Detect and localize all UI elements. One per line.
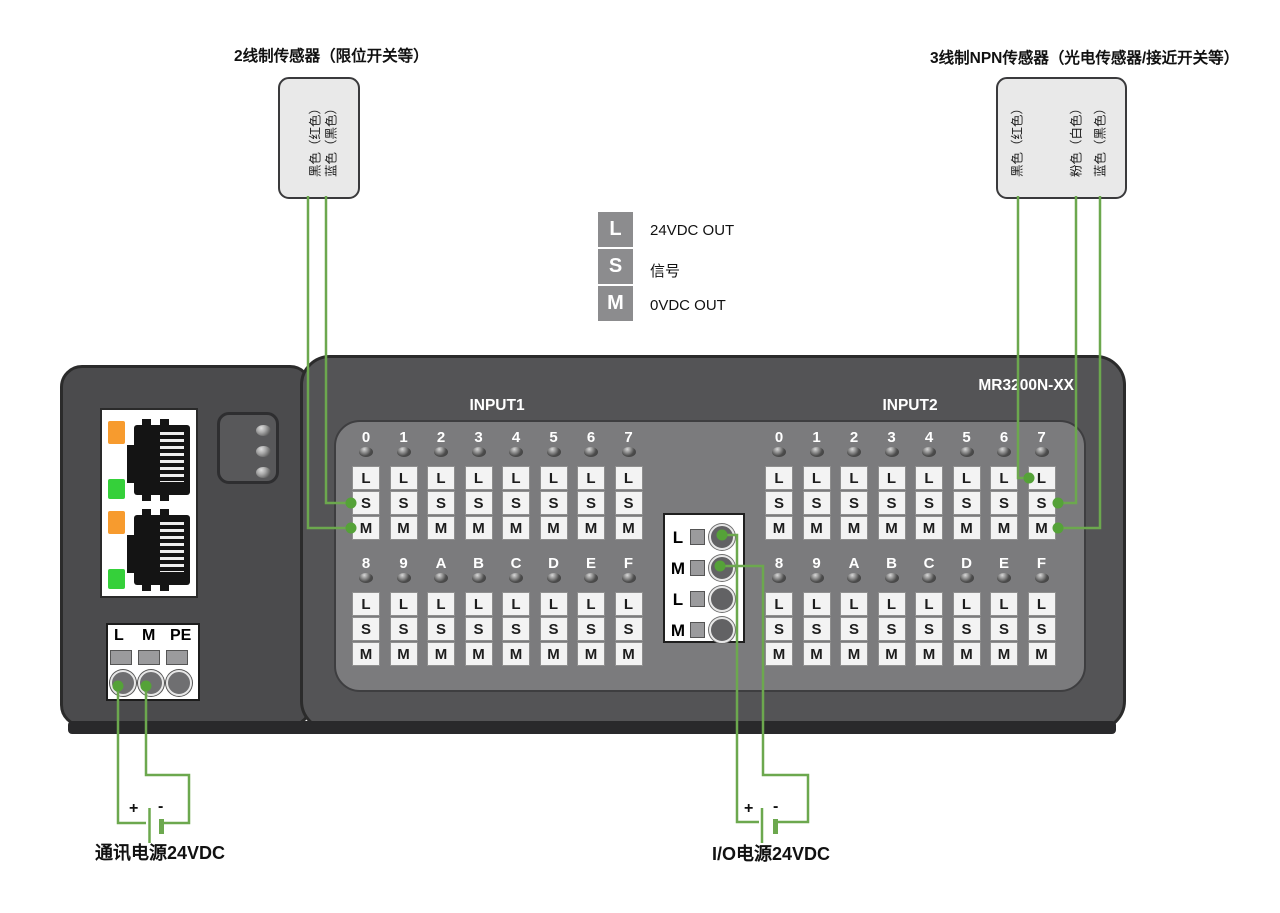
terminal-m: M: [803, 642, 831, 666]
channel-number: 0: [352, 429, 380, 446]
channel-led-icon: [434, 447, 448, 457]
channel-led-icon: [434, 573, 448, 583]
terminal-s: S: [465, 617, 493, 641]
rj45-latch-icon: [127, 535, 136, 573]
terminal-l: L: [427, 466, 455, 490]
terminal-s: S: [427, 491, 455, 515]
channel-column: BLSM: [465, 555, 493, 667]
comm-terminal-hole-icon: [110, 670, 136, 696]
channel-number: E: [990, 555, 1018, 572]
channel-led-icon: [397, 447, 411, 457]
wire-color-label: 蓝色（黑色）: [321, 92, 340, 188]
terminal-m: M: [502, 642, 530, 666]
terminal-s: S: [1028, 617, 1056, 641]
wire-color-label: 粉色（白色）: [1066, 92, 1085, 188]
comm-terminal-hole-icon: [166, 670, 192, 696]
terminal-l: L: [427, 592, 455, 616]
terminal-l: L: [840, 592, 868, 616]
terminal-m: M: [765, 642, 793, 666]
channel-number: 0: [765, 429, 793, 446]
channel-number: A: [427, 555, 455, 572]
terminal-s: S: [540, 617, 568, 641]
terminal-l: L: [1028, 592, 1056, 616]
channel-number: F: [615, 555, 643, 572]
terminal-m: M: [577, 642, 605, 666]
channel-column: 9LSM: [390, 555, 418, 667]
link-led-green-icon: [108, 569, 125, 589]
terminal-l: L: [878, 466, 906, 490]
io-terminal-hole-icon: [709, 555, 735, 581]
three-wire-sensor-title: 3线制NPN传感器（光电传感器/接近开关等）: [930, 46, 1239, 68]
channel-number: C: [502, 555, 530, 572]
comm-terminal-slot-icon: [138, 650, 160, 665]
terminal-s: S: [352, 491, 380, 515]
three-wire-sensor-box: 黑色（红色） 粉色（白色） 蓝色（黑色）: [996, 77, 1127, 199]
terminal-l: L: [953, 592, 981, 616]
terminal-l: L: [615, 592, 643, 616]
terminal-s: S: [1028, 491, 1056, 515]
channel-column: CLSM: [502, 555, 530, 667]
comm-psu-plus-sign: +: [129, 800, 138, 818]
channel-led-icon: [847, 447, 861, 457]
channel-column: 1LSM: [390, 429, 418, 541]
terminal-m: M: [990, 516, 1018, 540]
terminal-l: L: [540, 592, 568, 616]
channel-led-icon: [885, 573, 899, 583]
channel-column: 2LSM: [427, 429, 455, 541]
io-terminal-slot-icon: [690, 622, 705, 638]
terminal-l: L: [577, 466, 605, 490]
rj45-nub-icon: [160, 584, 169, 591]
terminal-m: M: [765, 516, 793, 540]
terminal-m: M: [840, 516, 868, 540]
ethernet-port-1: [102, 416, 196, 501]
terminal-s: S: [878, 491, 906, 515]
legend-desc-M: 0VDC OUT: [650, 297, 726, 314]
channel-number: C: [915, 555, 943, 572]
terminal-l: L: [615, 466, 643, 490]
legend-desc-S: 信号: [650, 260, 680, 281]
channel-column: 9LSM: [803, 555, 831, 667]
channel-number: 3: [465, 429, 493, 446]
channel-led-icon: [1035, 447, 1049, 457]
channel-column: 8LSM: [352, 555, 380, 667]
channel-led-icon: [472, 447, 486, 457]
status-led-icon: [256, 467, 271, 478]
channel-led-icon: [772, 447, 786, 457]
rj45-nub-icon: [160, 419, 169, 426]
io-terminal-hole-icon: [709, 617, 735, 643]
terminal-s: S: [990, 491, 1018, 515]
channel-column: 7LSM: [1028, 429, 1056, 541]
terminal-l: L: [352, 592, 380, 616]
io-psu-minus-sign: -: [773, 798, 778, 816]
wire-color-label: 黑色（红色）: [1007, 92, 1026, 188]
terminal-l: L: [390, 466, 418, 490]
terminal-m: M: [465, 642, 493, 666]
terminal-s: S: [803, 491, 831, 515]
terminal-l: L: [840, 466, 868, 490]
status-led-pod: [217, 412, 279, 484]
channel-column: 6LSM: [990, 429, 1018, 541]
terminal-m: M: [953, 642, 981, 666]
channel-number: B: [465, 555, 493, 572]
channel-led-icon: [584, 447, 598, 457]
terminal-s: S: [878, 617, 906, 641]
terminal-m: M: [1028, 516, 1056, 540]
channel-led-icon: [772, 573, 786, 583]
channel-column: BLSM: [878, 555, 906, 667]
channel-led-icon: [997, 447, 1011, 457]
channel-led-icon: [1035, 573, 1049, 583]
wire-color-label: 蓝色（黑色）: [1090, 92, 1109, 188]
channel-number: B: [878, 555, 906, 572]
terminal-s: S: [390, 491, 418, 515]
channel-column: 5LSM: [953, 429, 981, 541]
terminal-m: M: [1028, 642, 1056, 666]
rj45-nub-icon: [142, 584, 151, 591]
channel-number: E: [577, 555, 605, 572]
rj45-latch-icon: [127, 445, 136, 483]
channel-column: 3LSM: [878, 429, 906, 541]
terminal-l: L: [465, 592, 493, 616]
io-terminal-slot-icon: [690, 591, 705, 607]
terminal-m: M: [953, 516, 981, 540]
comm-terminal-letter: PE: [170, 627, 191, 645]
channel-led-icon: [810, 447, 824, 457]
terminal-s: S: [765, 617, 793, 641]
terminal-s: S: [803, 617, 831, 641]
rj45-pins-icon: [160, 432, 184, 482]
terminal-m: M: [840, 642, 868, 666]
io-terminal-hole-icon: [709, 586, 735, 612]
comm-power-terminal-block: LMPE: [106, 623, 200, 701]
legend-key-M: M: [598, 286, 633, 321]
channel-column: 4LSM: [915, 429, 943, 541]
channel-number: 9: [390, 555, 418, 572]
rj45-nub-icon: [160, 509, 169, 516]
channel-column: DLSM: [540, 555, 568, 667]
terminal-m: M: [577, 516, 605, 540]
comm-psu-minus-sign: -: [158, 798, 163, 816]
channel-column: 3LSM: [465, 429, 493, 541]
terminal-s: S: [427, 617, 455, 641]
terminal-l: L: [953, 466, 981, 490]
terminal-l: L: [803, 592, 831, 616]
channel-led-icon: [885, 447, 899, 457]
input2-group-label: INPUT2: [850, 397, 970, 415]
channel-led-icon: [547, 447, 561, 457]
channel-number: F: [1028, 555, 1056, 572]
channel-number: 4: [502, 429, 530, 446]
terminal-m: M: [352, 642, 380, 666]
channel-column: 6LSM: [577, 429, 605, 541]
terminal-m: M: [427, 516, 455, 540]
comm-terminal-slot-icon: [166, 650, 188, 665]
terminal-m: M: [615, 642, 643, 666]
terminal-m: M: [427, 642, 455, 666]
terminal-l: L: [502, 466, 530, 490]
terminal-l: L: [765, 466, 793, 490]
terminal-l: L: [990, 592, 1018, 616]
channel-number: D: [540, 555, 568, 572]
channel-column: 5LSM: [540, 429, 568, 541]
terminal-l: L: [878, 592, 906, 616]
terminal-m: M: [878, 642, 906, 666]
rj45-nub-icon: [142, 494, 151, 501]
link-led-green-icon: [108, 479, 125, 499]
legend-desc-L: 24VDC OUT: [650, 222, 734, 239]
terminal-s: S: [953, 617, 981, 641]
wiring-diagram: 2线制传感器（限位开关等） 3线制NPN传感器（光电传感器/接近开关等） 黑色（…: [0, 0, 1280, 913]
channel-column: FLSM: [1028, 555, 1056, 667]
channel-column: 8LSM: [765, 555, 793, 667]
rj45-nub-icon: [160, 494, 169, 501]
terminal-m: M: [352, 516, 380, 540]
channel-column: 2LSM: [840, 429, 868, 541]
io-power-terminal-block: LMLM: [663, 513, 745, 643]
channel-number: D: [953, 555, 981, 572]
terminal-m: M: [540, 516, 568, 540]
channel-column: 0LSM: [765, 429, 793, 541]
channel-led-icon: [922, 447, 936, 457]
status-led-icon: [256, 425, 271, 436]
channel-column: ALSM: [840, 555, 868, 667]
terminal-l: L: [390, 592, 418, 616]
terminal-s: S: [840, 491, 868, 515]
channel-column: ELSM: [990, 555, 1018, 667]
channel-led-icon: [397, 573, 411, 583]
terminal-s: S: [765, 491, 793, 515]
io-psu-label: I/O电源24VDC: [712, 840, 830, 866]
terminal-l: L: [502, 592, 530, 616]
terminal-s: S: [390, 617, 418, 641]
terminal-s: S: [352, 617, 380, 641]
rj45-nub-icon: [142, 509, 151, 516]
ethernet-port-2: [102, 506, 196, 591]
terminal-m: M: [915, 642, 943, 666]
channel-column: DLSM: [953, 555, 981, 667]
channel-column: ALSM: [427, 555, 455, 667]
two-wire-sensor-title: 2线制传感器（限位开关等）: [234, 44, 429, 66]
io-terminal-slot-icon: [690, 529, 705, 545]
device-base-edge: [68, 721, 1116, 734]
io-terminal-letter: L: [667, 528, 689, 548]
channel-number: 4: [915, 429, 943, 446]
channel-column: 1LSM: [803, 429, 831, 541]
channel-column: FLSM: [615, 555, 643, 667]
link-led-orange-icon: [108, 421, 125, 444]
terminal-l: L: [915, 466, 943, 490]
comm-terminal-letter: M: [142, 627, 155, 645]
io-terminal-hole-icon: [709, 524, 735, 550]
channel-number: 7: [615, 429, 643, 446]
io-terminal-letter: L: [667, 590, 689, 610]
terminal-l: L: [990, 466, 1018, 490]
channel-column: 4LSM: [502, 429, 530, 541]
terminal-m: M: [540, 642, 568, 666]
terminal-m: M: [502, 516, 530, 540]
comm-psu-label: 通讯电源24VDC: [95, 839, 225, 865]
legend-key-S: S: [598, 249, 633, 284]
channel-led-icon: [810, 573, 824, 583]
rj45-nub-icon: [142, 419, 151, 426]
terminal-m: M: [465, 516, 493, 540]
io-terminal-letter: M: [667, 621, 689, 641]
terminal-m: M: [390, 642, 418, 666]
two-wire-sensor-box: 黑色（红色） 蓝色（黑色）: [278, 77, 360, 199]
io-psu-plus-sign: +: [744, 800, 753, 818]
channel-led-icon: [509, 573, 523, 583]
terminal-s: S: [915, 491, 943, 515]
model-label: MR3200N-XX: [948, 377, 1074, 395]
terminal-s: S: [990, 617, 1018, 641]
input1-group-label: INPUT1: [437, 397, 557, 415]
channel-number: 1: [390, 429, 418, 446]
channel-column: ELSM: [577, 555, 605, 667]
channel-number: A: [840, 555, 868, 572]
channel-led-icon: [584, 573, 598, 583]
terminal-m: M: [915, 516, 943, 540]
comm-terminal-hole-icon: [138, 670, 164, 696]
io-terminal-letter: M: [667, 559, 689, 579]
channel-number: 3: [878, 429, 906, 446]
terminal-m: M: [990, 642, 1018, 666]
terminal-l: L: [540, 466, 568, 490]
channel-led-icon: [997, 573, 1011, 583]
channel-led-icon: [622, 573, 636, 583]
channel-led-icon: [960, 447, 974, 457]
status-led-icon: [256, 446, 271, 457]
terminal-s: S: [502, 491, 530, 515]
terminal-s: S: [915, 617, 943, 641]
comm-terminal-slot-icon: [110, 650, 132, 665]
channel-led-icon: [359, 573, 373, 583]
channel-number: 6: [577, 429, 605, 446]
terminal-s: S: [465, 491, 493, 515]
comm-terminal-letter: L: [114, 627, 124, 645]
terminal-s: S: [840, 617, 868, 641]
channel-number: 5: [953, 429, 981, 446]
channel-number: 6: [990, 429, 1018, 446]
terminal-s: S: [615, 491, 643, 515]
link-led-orange-icon: [108, 511, 125, 534]
terminal-l: L: [1028, 466, 1056, 490]
channel-number: 2: [427, 429, 455, 446]
channel-number: 9: [803, 555, 831, 572]
terminal-l: L: [577, 592, 605, 616]
terminal-l: L: [465, 466, 493, 490]
channel-led-icon: [547, 573, 561, 583]
channel-number: 8: [765, 555, 793, 572]
terminal-s: S: [577, 491, 605, 515]
channel-led-icon: [847, 573, 861, 583]
channel-number: 7: [1028, 429, 1056, 446]
channel-led-icon: [509, 447, 523, 457]
terminal-s: S: [615, 617, 643, 641]
terminal-s: S: [577, 617, 605, 641]
terminal-l: L: [803, 466, 831, 490]
terminal-m: M: [878, 516, 906, 540]
channel-column: 7LSM: [615, 429, 643, 541]
ethernet-panel: [100, 408, 198, 598]
channel-column: 0LSM: [352, 429, 380, 541]
channel-led-icon: [922, 573, 936, 583]
terminal-m: M: [390, 516, 418, 540]
terminal-m: M: [615, 516, 643, 540]
terminal-s: S: [540, 491, 568, 515]
channel-number: 8: [352, 555, 380, 572]
channel-number: 5: [540, 429, 568, 446]
channel-led-icon: [622, 447, 636, 457]
terminal-m: M: [803, 516, 831, 540]
channel-number: 1: [803, 429, 831, 446]
terminal-s: S: [953, 491, 981, 515]
terminal-l: L: [765, 592, 793, 616]
channel-number: 2: [840, 429, 868, 446]
channel-led-icon: [960, 573, 974, 583]
channel-led-icon: [359, 447, 373, 457]
legend-key-L: L: [598, 212, 633, 247]
terminal-l: L: [352, 466, 380, 490]
terminal-l: L: [915, 592, 943, 616]
channel-column: CLSM: [915, 555, 943, 667]
io-terminal-slot-icon: [690, 560, 705, 576]
rj45-pins-icon: [160, 522, 184, 572]
channel-led-icon: [472, 573, 486, 583]
terminal-s: S: [502, 617, 530, 641]
